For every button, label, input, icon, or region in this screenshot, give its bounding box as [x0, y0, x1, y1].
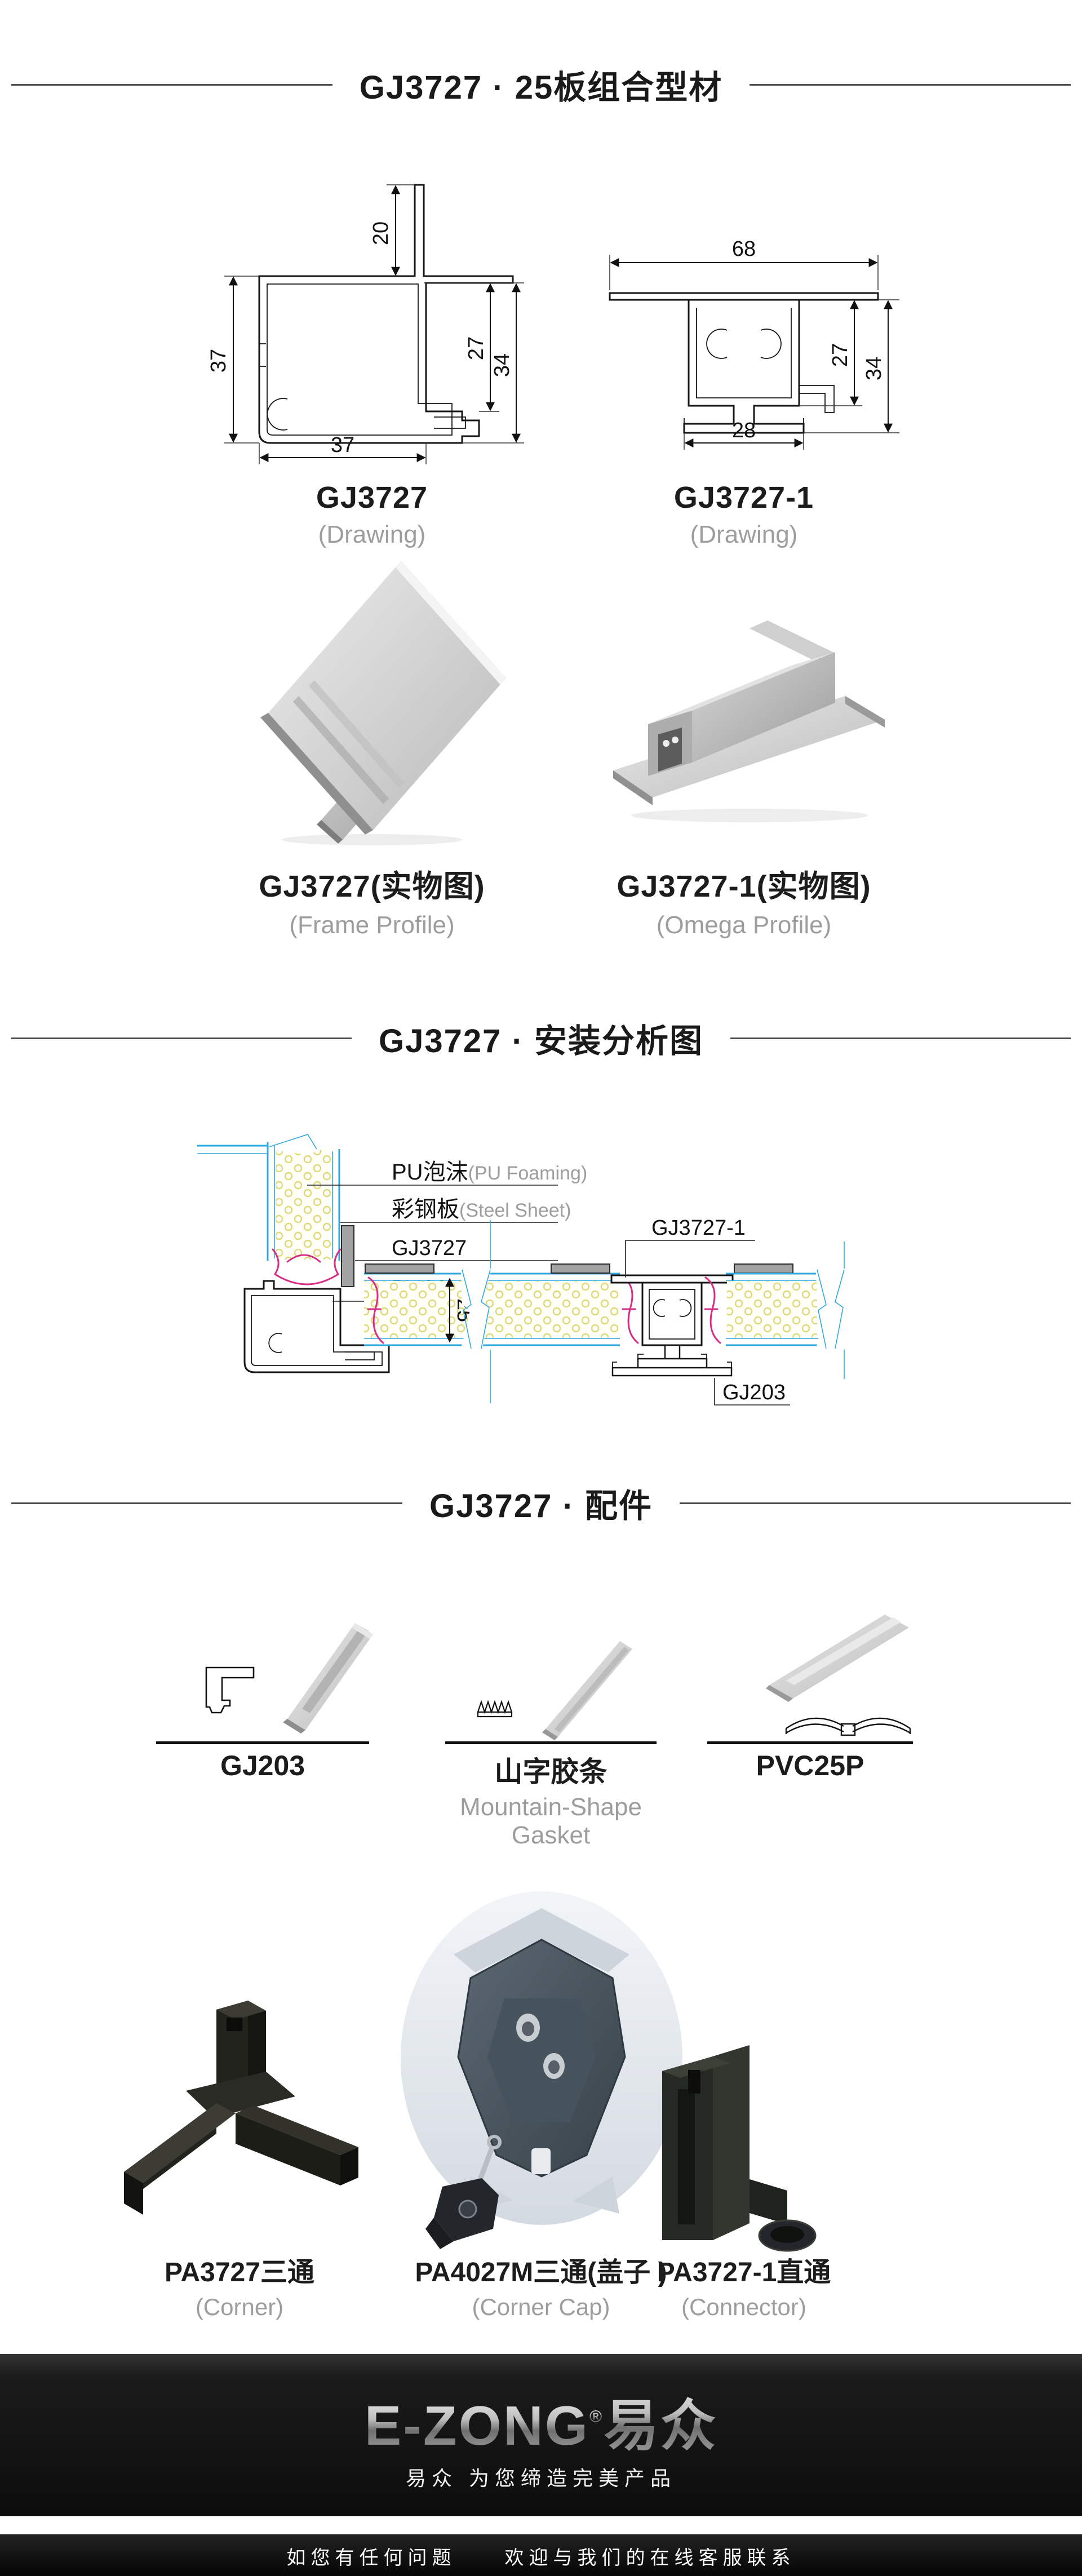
svg-text:PU泡沫(PU Foaming): PU泡沫(PU Foaming) [392, 1160, 587, 1185]
registered-mark-icon: ® [589, 2407, 604, 2427]
connector-name: PA3727-1直通 [623, 2250, 865, 2289]
section-header-install: GJ3727 · 安装分析图 [11, 1014, 1071, 1062]
drawing-sub: (Drawing) [569, 521, 919, 549]
contact-text: 如您有任何问题 欢迎与我们的在线客服联系 [287, 2542, 796, 2570]
connector-sub: (Connector) [623, 2294, 865, 2321]
caption-gj3727-drawing: GJ3727 (Drawing) [197, 480, 547, 549]
gasket-product-photo [535, 1629, 657, 1744]
dim-27: 27 [828, 343, 852, 367]
label-steel-sheet-en: (Steel Sheet) [459, 1200, 571, 1221]
header-rule-left [11, 1038, 352, 1039]
caption-gj3727-photo: GJ3727(实物图) (Frame Profile) [197, 861, 547, 939]
drawing-name: GJ3727 [197, 480, 547, 515]
caption-pa3727-1: PA3727-1直通 (Connector) [623, 2250, 865, 2321]
logo-cn-text: 易众 [604, 2381, 717, 2461]
dim-34: 34 [490, 353, 514, 377]
installation-analysis-diagram: PU泡沫(PU Foaming) 彩钢板(Steel Sheet) GJ3727… [197, 1113, 907, 1440]
header-rule-right [750, 84, 1071, 86]
dim-34: 34 [862, 357, 886, 380]
section-title-parts: GJ3727 · 配件 [429, 1479, 653, 1527]
header-rule-left [11, 1502, 402, 1504]
pa3727-1-connector-photo [645, 2037, 831, 2257]
wall-panel-left [364, 1264, 620, 1345]
caption-gj3727-1-drawing: GJ3727-1 (Drawing) [569, 480, 919, 549]
accessory-sub: Mountain-Shape Gasket [445, 1793, 657, 1850]
dim-20: 20 [369, 221, 393, 245]
wall-panel-right [726, 1274, 820, 1345]
drawing-name: GJ3727-1 [569, 480, 919, 515]
accessory-underline [707, 1741, 913, 1744]
brand-slogan: 易众 为您缔造完美产品 [0, 2462, 1082, 2491]
gj203-base-plate [613, 1368, 731, 1376]
photo-sub: (Frame Profile) [197, 911, 547, 939]
label-gj3727-1: GJ3727-1 [651, 1216, 746, 1240]
gj3727-1-cross-section-drawing: 68 27 34 28 [569, 225, 919, 451]
pa4027m-cap-photo [409, 2133, 533, 2251]
photo-name: GJ3727(实物图) [197, 861, 547, 906]
dim-37-left: 37 [207, 349, 230, 373]
caption-gj3727-1-photo: GJ3727-1(实物图) (Omega Profile) [569, 861, 919, 939]
caption-pvc25p: PVC25P [707, 1749, 913, 1782]
label-gj3727: GJ3727 [392, 1236, 467, 1260]
header-rule-left [11, 84, 332, 86]
vertical-panel [268, 1128, 340, 1284]
label-pu-foam-cn: PU泡沫 [392, 1160, 468, 1185]
accessory-name: PVC25P [707, 1749, 913, 1782]
gj3727-product-photo [254, 555, 558, 848]
dim-27: 27 [464, 336, 488, 360]
photo-sub: (Omega Profile) [569, 911, 919, 939]
catalog-page: GJ3727 · 25板组合型材 20 37 27 34 37 [0, 0, 1082, 2576]
accessory-underline [156, 1741, 369, 1744]
photo-name: GJ3727-1(实物图) [569, 861, 919, 906]
pvc25p-section-icon [781, 1705, 916, 1739]
accessory-underline [445, 1741, 657, 1744]
header-rule-right [680, 1502, 1071, 1504]
header-rule-right [730, 1038, 1071, 1039]
caption-gj203: GJ203 [156, 1749, 369, 1782]
connector-sub: (Corner) [101, 2294, 378, 2321]
connector-name: PA3727三通 [101, 2250, 378, 2289]
drawing-sub: (Drawing) [197, 521, 547, 549]
svg-text:彩钢板(Steel Sheet): 彩钢板(Steel Sheet) [392, 1197, 571, 1222]
gj3727-1-product-photo [580, 595, 896, 831]
section-title-install: GJ3727 · 安装分析图 [379, 1014, 703, 1062]
logo-ezong-text: E-ZONG [365, 2394, 589, 2458]
gj203-section-icon [197, 1660, 276, 1727]
label-pu-foam-en: (PU Foaming) [468, 1163, 588, 1184]
gasket-section-icon [473, 1691, 524, 1722]
accessory-name: 山字胶条 [445, 1749, 657, 1790]
pvc25p-product-photo [764, 1606, 919, 1702]
accessory-name: GJ203 [156, 1749, 369, 1782]
gj203-product-photo [270, 1612, 394, 1741]
section-header-parts: GJ3727 · 配件 [11, 1479, 1071, 1527]
label-gj203: GJ203 [722, 1381, 786, 1404]
footer-brand-block: E-ZONG®易众 易众 为您缔造完美产品 [0, 2354, 1082, 2516]
gj3727-profile-edge [342, 1226, 354, 1287]
pa3727-corner-photo [101, 1984, 378, 2254]
label-steel-sheet-cn: 彩钢板 [392, 1197, 459, 1222]
section-header-profiles: GJ3727 · 25板组合型材 [11, 61, 1071, 108]
caption-gasket: 山字胶条 Mountain-Shape Gasket [445, 1749, 657, 1850]
dim-28: 28 [732, 419, 756, 442]
brand-logo: E-ZONG®易众 [0, 2381, 1082, 2461]
contact-strip: 如您有任何问题 欢迎与我们的在线客服联系 [0, 2534, 1082, 2576]
panel-break-right [816, 1242, 845, 1379]
dim-68: 68 [732, 237, 756, 261]
section-title-profiles: GJ3727 · 25板组合型材 [360, 61, 722, 108]
gj3727-cross-section-drawing: 20 37 27 34 37 [197, 175, 547, 468]
caption-pa3727: PA3727三通 (Corner) [101, 2250, 378, 2321]
dim-37-bottom: 37 [331, 433, 354, 457]
